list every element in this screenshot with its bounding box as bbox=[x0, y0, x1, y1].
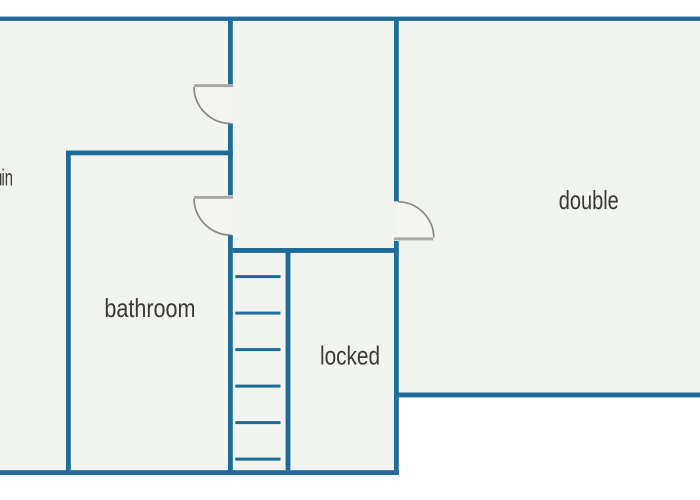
svg-text:in: in bbox=[2, 165, 14, 191]
svg-text:double: double bbox=[559, 185, 619, 215]
svg-text:bathroom: bathroom bbox=[104, 293, 195, 323]
svg-text:locked: locked bbox=[320, 341, 380, 371]
